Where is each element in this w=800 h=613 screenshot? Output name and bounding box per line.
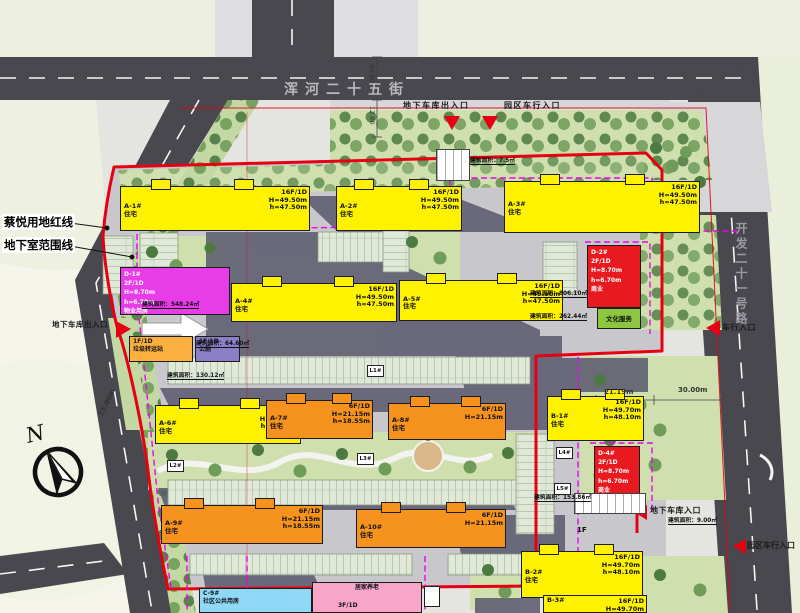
building-use: 住宅	[508, 209, 526, 217]
building-use: 住宅	[551, 421, 569, 429]
building-height2: h=48.10m	[603, 414, 641, 422]
building-b2: B-2#住宅 16F/1DH=49.70mh=48.10m	[521, 551, 643, 598]
area-label-d1: 建筑面积：548.24㎡	[142, 299, 199, 309]
street-name-top: 浑河二十五街	[284, 79, 410, 99]
building-b3: B-3# 16F/1DH=49.70m	[543, 595, 647, 613]
roof-core	[234, 179, 254, 190]
marker-l4: L4#	[556, 447, 573, 459]
building-a9: A-9#住宅 6F/1DH=21.15mh=18.55m	[161, 505, 323, 544]
building-height: H=49.70m	[606, 606, 644, 613]
entrance-left-garage-label: 地下车库出入口	[52, 319, 108, 330]
building-use: 社区公共用房	[203, 598, 239, 606]
dim-right-road: 30.00m	[678, 386, 707, 394]
building-b1: B-1#住宅 16F/1DH=49.70mh=48.10m	[547, 396, 644, 441]
roof-core	[334, 276, 354, 287]
roof-core	[240, 398, 260, 409]
building-a3: A-3#住宅 16F/1DH=49.50mh=47.50m	[504, 181, 700, 233]
building-height2: h=47.50m	[356, 301, 394, 309]
entrance-top-vehicle-label: 园区车行入口	[504, 100, 561, 111]
roof-core	[446, 502, 466, 513]
building-use: 住宅	[403, 303, 421, 311]
building-height: H=21.15m	[465, 520, 503, 528]
roof-core	[381, 502, 401, 513]
area-label-toilet: 建筑面积：64.60㎡	[196, 338, 249, 348]
area-label-gate1: 建筑面积：7.5㎡	[470, 155, 515, 165]
building-height2: h=47.50m	[421, 204, 459, 212]
building-floors: 2F/1D	[598, 458, 629, 467]
building-home-care: 居家养老	[312, 582, 422, 613]
roof-core	[561, 389, 581, 400]
building-id: D-4#	[598, 449, 629, 458]
site-plan: A-1#住宅 16F/1DH=49.50mh=47.50m A-2#住宅 16F…	[0, 0, 800, 613]
building-id: C-9#	[203, 590, 239, 598]
building-height2: h=6.70m	[598, 477, 629, 486]
c9-floors-label: 3F/1D	[338, 602, 358, 609]
building-a1: A-1#住宅 16F/1DH=49.50mh=47.50m	[120, 186, 310, 231]
building-use: 住宅	[235, 306, 253, 314]
roof-core	[262, 276, 282, 287]
legend-basement-line: 地下室范围线	[2, 237, 75, 253]
building-use: 住宅	[525, 577, 543, 585]
entrance-top-garage-label: 地下车库出入口	[403, 100, 470, 111]
roof-core	[179, 398, 199, 409]
dim-right-gap: 21.19m	[604, 388, 633, 396]
building-use: 住宅	[392, 425, 410, 433]
building-use: 住宅	[124, 211, 142, 219]
building-d2-commerce: D-2# 2F/1D H=8.70m h=6.70m 商业	[587, 245, 641, 308]
building-a8: A-8#住宅 6F/1DH=21.15m	[388, 403, 506, 440]
building-garbage-station: 1F/1D 垃圾转运站	[129, 336, 193, 362]
marker-l3: L3#	[357, 453, 374, 465]
building-use: 住宅	[270, 423, 288, 431]
street-name-right: 开发二十一号路	[733, 222, 750, 327]
building-id: B-3#	[547, 597, 565, 605]
building-id: D-2#	[591, 248, 622, 257]
gate-floor-label: 1F	[577, 526, 587, 534]
roof-core	[426, 273, 446, 284]
building-id: D-1#	[124, 270, 155, 279]
building-c9-community: C-9# 社区公共用房	[199, 588, 312, 613]
roof-core	[497, 273, 517, 284]
small-white-building	[424, 586, 440, 607]
building-use: 住宅	[360, 532, 382, 540]
building-use: 商业	[591, 285, 622, 294]
building-use: 垃圾转运站	[133, 346, 163, 354]
roof-core	[540, 174, 560, 185]
area-label-d2: 建筑面积：806.10㎡	[530, 288, 587, 298]
building-floors: 2F/1D	[124, 279, 155, 288]
entrance-br-vehicle-label: 园区车行入口	[747, 540, 795, 551]
area-label-d4: 建筑面积：153.86㎡	[534, 492, 591, 502]
building-floors: 2F/1D	[591, 257, 622, 266]
marker-l2: L2#	[167, 460, 184, 472]
roof-core	[286, 393, 306, 404]
roof-core	[354, 179, 374, 190]
gate-house-top	[436, 149, 470, 181]
roof-core	[184, 498, 204, 509]
marker-l1: L1#	[367, 365, 384, 377]
building-height2: h=18.55m	[282, 523, 320, 531]
building-a10: A-10#住宅 6F/1DH=21.15m	[356, 509, 506, 548]
building-height2: h=6.70m	[591, 276, 622, 285]
dim-road-top-width: 30.00	[368, 64, 376, 83]
building-use: 文化服务	[606, 315, 632, 323]
building-culture-service: 文化服务	[597, 308, 641, 329]
building-height: H=8.70m	[598, 467, 629, 476]
building-use: 住宅	[340, 211, 358, 219]
roof-core	[410, 396, 430, 407]
building-height: H=8.70m	[124, 288, 155, 297]
building-height2: h=47.50m	[269, 204, 307, 212]
building-use: 住宅	[165, 528, 183, 536]
building-height2: h=47.50m	[522, 298, 560, 306]
entrance-br-garage-label: 地下车库入口	[650, 505, 701, 516]
building-a7: A-7#住宅 6F/1DH=21.15mh=18.55m	[266, 400, 373, 439]
area-label-gate2: 建筑面积：9.00㎡	[668, 515, 717, 525]
building-height: H=21.15m	[465, 414, 503, 422]
roof-core	[255, 498, 275, 509]
building-height2: h=48.10m	[602, 569, 640, 577]
building-floors: 1F/1D	[133, 338, 163, 346]
area-label-culture: 建筑面积：262.44㎡	[530, 311, 587, 321]
building-use: 居家养老	[355, 584, 379, 592]
building-height2: h=18.55m	[332, 418, 370, 426]
roof-core	[151, 179, 171, 190]
roof-core	[625, 174, 645, 185]
building-a4: A-4#住宅 16F/1DH=49.50mh=47.50m	[231, 283, 397, 322]
roof-core	[539, 544, 559, 555]
building-height: H=8.70m	[591, 266, 622, 275]
legend-red-line: 蔡悦用地红线	[2, 214, 75, 230]
dim-road-top-offset: 12.00	[368, 106, 376, 125]
building-a2: A-2#住宅 16F/1DH=49.50mh=47.50m	[336, 186, 462, 231]
area-label-station: 建筑面积：130.12㎡	[167, 370, 224, 380]
building-height2: h=47.50m	[659, 199, 697, 207]
building-use: 住宅	[159, 428, 177, 436]
